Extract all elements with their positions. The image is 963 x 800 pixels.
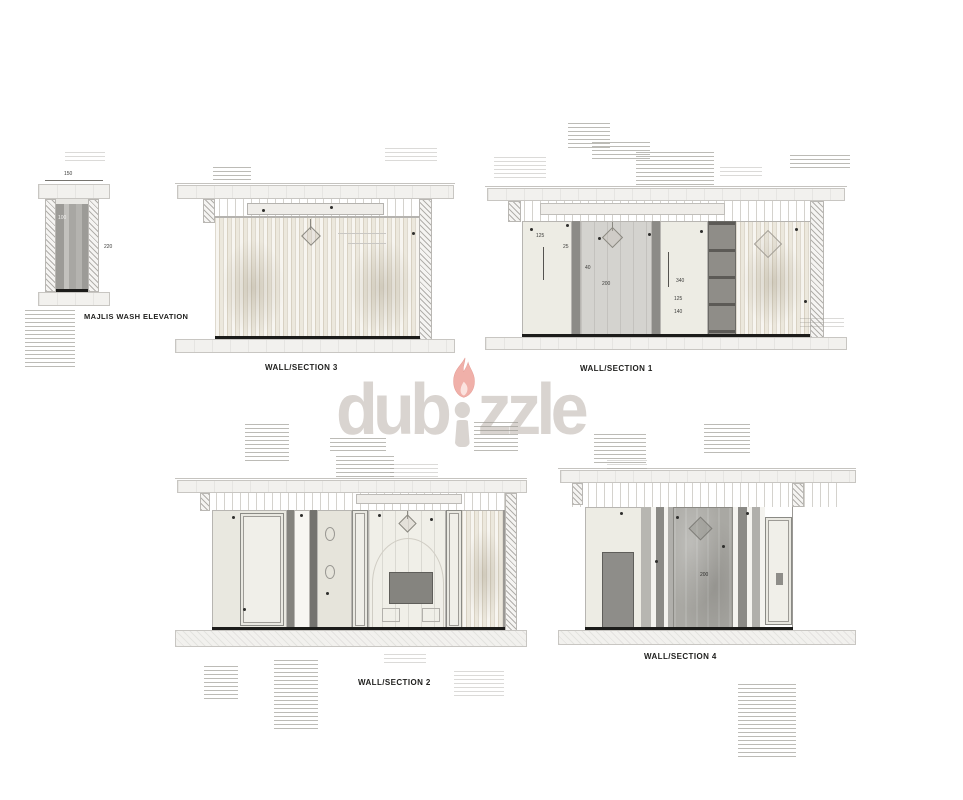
- dim-s1-c: 40: [585, 266, 591, 271]
- s3-curtain-shade: [222, 240, 284, 335]
- s2-pilaster-right: [446, 510, 462, 629]
- annotation-block: [245, 424, 289, 464]
- s3-leader-line: [338, 233, 386, 234]
- leader-dot: [676, 516, 679, 519]
- s4-title: WALL/SECTION 4: [644, 652, 717, 661]
- dim-majlis-height: 220: [104, 245, 112, 250]
- annotation-block: [800, 318, 844, 328]
- leader-dot: [566, 224, 569, 227]
- watermark-i-body: [455, 420, 470, 447]
- s1-wood-strip: [572, 221, 580, 336]
- s3-title: WALL/SECTION 3: [265, 363, 338, 372]
- annotation-block: [213, 167, 251, 180]
- majlis-floor-slab: [38, 292, 110, 306]
- s4-door-keypad: [776, 573, 783, 585]
- leader-dot: [746, 512, 749, 515]
- dim-s1-a: 125: [536, 234, 544, 239]
- s1-wood-strip: [652, 221, 660, 336]
- annotation-block: [738, 684, 796, 758]
- leader-dot: [412, 232, 415, 235]
- majlis-elevation-title: MAJLIS WASH ELEVATION: [84, 312, 188, 321]
- dim-s1-g: 140: [674, 310, 682, 315]
- leader-dot: [700, 230, 703, 233]
- leader-dot: [530, 228, 533, 231]
- s4-stripe: [642, 507, 651, 629]
- leader-dot: [620, 512, 623, 515]
- s3-roof-line: [175, 183, 455, 184]
- s4-right-edge: [792, 507, 793, 629]
- dim-line-majlis-width: [45, 180, 103, 181]
- s4-door-frame: [765, 517, 792, 625]
- flame-icon: [446, 356, 480, 402]
- wall-light-icon: [325, 565, 335, 579]
- s2-title: WALL/SECTION 2: [358, 678, 431, 687]
- s1-shelf-cabinet: [708, 221, 736, 336]
- s2-curtain-shade: [465, 530, 503, 620]
- annotation-block: [336, 456, 394, 480]
- s3-wall-left-hatch: [203, 199, 215, 223]
- s3-curtain-shade: [350, 240, 414, 335]
- s2-wood-strip: [287, 510, 294, 629]
- s3-ceiling-slab: [177, 185, 454, 199]
- leader-dot: [430, 518, 433, 521]
- majlis-ceiling-slab: [38, 184, 110, 199]
- s2-pilaster-left: [352, 510, 368, 629]
- s4-ceiling-slab: [560, 470, 856, 483]
- s2-console-left: [382, 608, 400, 622]
- dim-s1-f: 125: [674, 297, 682, 302]
- majlis-wall-right-hatch: [88, 199, 99, 292]
- watermark-i-head: [455, 402, 470, 418]
- s4-floor-slab: [558, 630, 856, 645]
- s1-vert-dim-line: [668, 252, 669, 287]
- s2-floor-slab: [175, 630, 527, 647]
- s1-cornice-box: [540, 203, 725, 215]
- s2-ceiling-slab: [177, 480, 527, 493]
- s1-vert-dim-line: [543, 247, 544, 280]
- s3-floor-slab: [175, 339, 455, 353]
- leader-dot: [795, 228, 798, 231]
- s2-wall-right-hatch: [505, 493, 517, 632]
- s4-roof-line: [558, 468, 856, 469]
- annotation-block: [607, 460, 647, 470]
- s1-roof-line: [485, 186, 847, 187]
- s2-cornice-box: [356, 494, 462, 504]
- s4-wall-right-hatch: [792, 483, 804, 507]
- dim-s1-e: 340: [676, 279, 684, 284]
- dim-s4-a: 200: [700, 573, 708, 578]
- dubizzle-watermark: dub zzle: [336, 374, 584, 448]
- s2-panel-white: [294, 510, 310, 629]
- dim-s1-b: 25: [563, 245, 569, 250]
- leader-dot: [232, 516, 235, 519]
- s2-tv: [389, 572, 433, 604]
- s4-stripe: [738, 507, 747, 629]
- s4-wall-left-hatch: [572, 483, 583, 505]
- leader-dot: [598, 237, 601, 240]
- annotation-block: [704, 424, 750, 456]
- s1-ceiling-slab: [487, 188, 845, 201]
- dim-majlis-width: 150: [64, 172, 72, 177]
- leader-dot: [262, 209, 265, 212]
- leader-dot: [326, 592, 329, 595]
- leader-dot: [300, 514, 303, 517]
- s2-wood-strip: [310, 510, 317, 629]
- s1-floor-slab: [485, 337, 847, 350]
- s3-leader-line: [348, 243, 386, 244]
- annotation-block: [454, 671, 504, 699]
- annotation-block: [790, 155, 850, 171]
- leader-dot: [243, 608, 246, 611]
- leader-dot: [655, 560, 658, 563]
- s4-tall-dark-panel: [602, 552, 634, 629]
- annotation-block: [25, 310, 75, 368]
- majlis-wall-left-hatch: [45, 199, 56, 292]
- s2-wall-left-hatch: [200, 493, 210, 511]
- s1-panel-cream-left: [522, 221, 572, 336]
- annotation-block: [274, 660, 318, 730]
- leader-dot: [804, 300, 807, 303]
- majlis-interior-cornice: [56, 199, 88, 204]
- s3-wall-right-hatch: [419, 199, 432, 340]
- leader-dot: [722, 545, 725, 548]
- leader-dot: [330, 206, 333, 209]
- annotation-block: [636, 152, 714, 185]
- s4-stripe: [752, 507, 760, 629]
- s3-cornice-box: [247, 203, 384, 215]
- annotation-block: [474, 422, 518, 454]
- dim-s1-d: 200: [602, 282, 610, 287]
- majlis-interior-elevation: [56, 199, 88, 292]
- architectural-drawing-sheet: 150 100 220 MAJLIS WASH ELEVATION WALL/S…: [0, 0, 963, 800]
- s2-console-right: [422, 608, 440, 622]
- annotation-block: [494, 157, 546, 179]
- leader-dot: [648, 233, 651, 236]
- s2-curtain-edge: [503, 510, 505, 629]
- annotation-block: [65, 152, 105, 164]
- annotation-block: [385, 148, 437, 161]
- dim-majlis-inner: 100: [58, 216, 66, 221]
- annotation-block: [720, 167, 762, 178]
- s1-title: WALL/SECTION 1: [580, 364, 653, 373]
- annotation-block: [204, 666, 238, 702]
- wall-light-icon: [325, 527, 335, 541]
- s4-stripe: [656, 507, 664, 629]
- watermark-letter-i: [452, 374, 473, 448]
- annotation-block: [390, 464, 438, 480]
- s1-wall-left-hatch: [508, 201, 521, 222]
- s2-tall-framed-panel: [240, 513, 284, 626]
- watermark-text-left: dub: [336, 374, 447, 446]
- annotation-block: [384, 654, 426, 664]
- annotation-block: [330, 438, 386, 454]
- leader-dot: [378, 514, 381, 517]
